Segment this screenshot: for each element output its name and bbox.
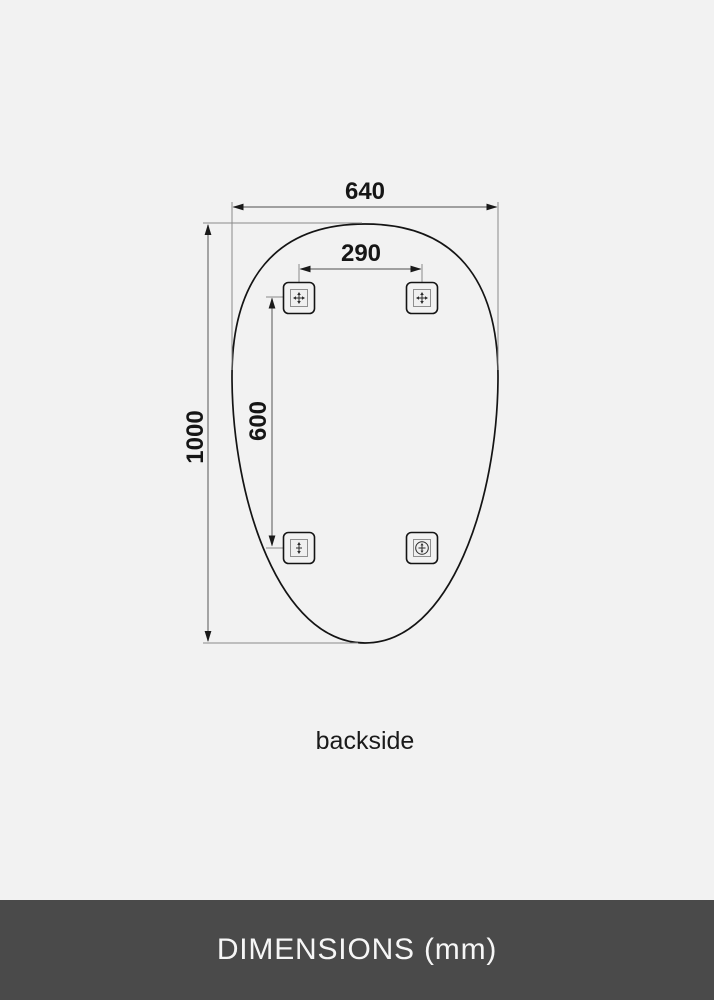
label-overall-height: 1000 [182,410,209,463]
mirror-diagram-svg: 640 1000 290 600 [0,0,714,900]
label-mount-width: 290 [341,240,381,267]
footer-label: DIMENSIONS (mm) [217,933,497,967]
mirror-dimension-page: 640 1000 290 600 [0,0,714,1000]
diagram-area: 640 1000 290 600 [0,0,714,900]
footer-bar: DIMENSIONS (mm) [0,900,714,1000]
label-mount-height: 600 [245,401,272,441]
mount-bracket-top-left [284,283,315,314]
label-overall-width: 640 [345,178,385,205]
dimension-mount-width: 290 [299,240,422,282]
backside-caption: backside [316,727,415,755]
mount-bracket-bottom-right [407,533,438,564]
mount-bracket-top-right [407,283,438,314]
mount-bracket-bottom-left [284,533,315,564]
